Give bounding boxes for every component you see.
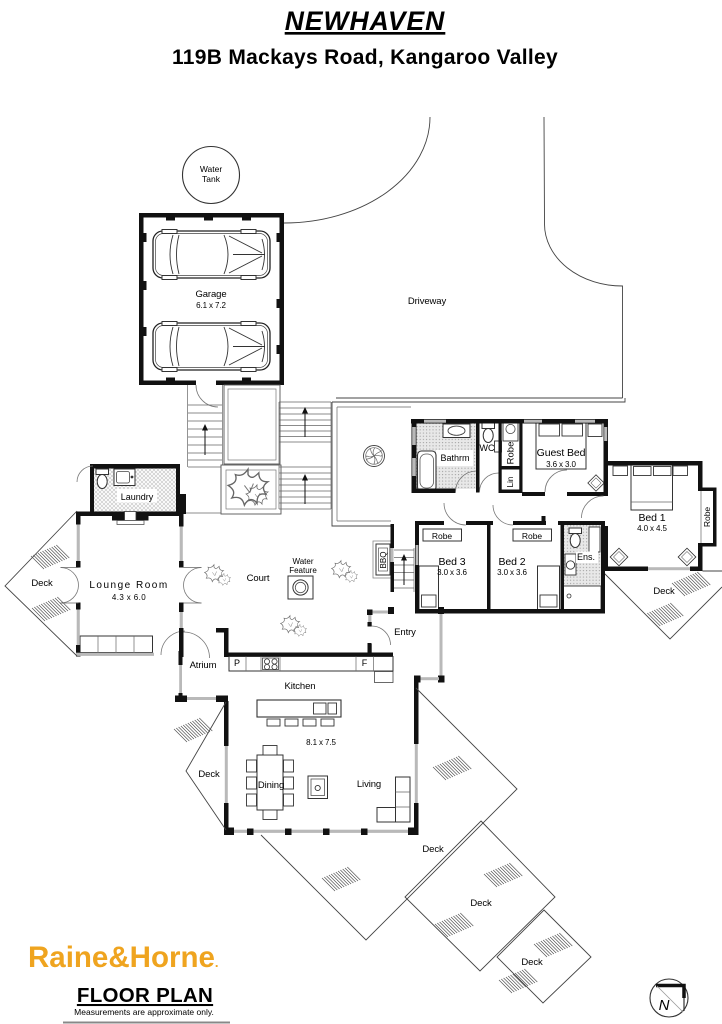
svg-text:6.1 x 7.2: 6.1 x 7.2 xyxy=(196,301,226,310)
svg-text:Guest Bed: Guest Bed xyxy=(537,447,586,459)
svg-text:Driveway: Driveway xyxy=(408,296,447,307)
svg-text:Court: Court xyxy=(247,573,270,584)
svg-text:Ens.: Ens. xyxy=(577,552,595,562)
svg-text:FLOOR PLAN: FLOOR PLAN xyxy=(77,984,213,1007)
svg-text:Water: Water xyxy=(292,557,313,566)
svg-text:Lin: Lin xyxy=(506,477,515,488)
svg-text:3.6 x 3.0: 3.6 x 3.0 xyxy=(546,460,576,469)
svg-text:Robe: Robe xyxy=(506,442,517,465)
svg-text:Tank: Tank xyxy=(202,174,221,184)
svg-text:Living: Living xyxy=(357,779,381,790)
svg-text:Bed 3: Bed 3 xyxy=(439,556,466,568)
svg-text:119B Mackays Road, Kangaroo Va: 119B Mackays Road, Kangaroo Valley xyxy=(172,46,558,69)
svg-text:Raine&Horne.: Raine&Horne. xyxy=(28,941,219,974)
svg-text:Feature: Feature xyxy=(289,566,317,575)
svg-text:NEWHAVEN: NEWHAVEN xyxy=(285,6,446,36)
svg-text:F: F xyxy=(362,658,368,668)
svg-text:4.3 x 6.0: 4.3 x 6.0 xyxy=(112,593,146,602)
svg-text:Garage: Garage xyxy=(195,289,226,300)
svg-text:Bed 2: Bed 2 xyxy=(499,556,526,568)
svg-text:Dining: Dining xyxy=(258,780,284,791)
svg-text:Lounge Room: Lounge Room xyxy=(89,580,168,591)
svg-text:3.0 x 3.6: 3.0 x 3.6 xyxy=(497,568,527,577)
svg-text:P: P xyxy=(234,658,240,668)
svg-text:BBQ: BBQ xyxy=(379,552,388,569)
svg-text:Laundry: Laundry xyxy=(121,492,154,502)
svg-text:N: N xyxy=(659,997,670,1014)
svg-text:4.0 x 4.5: 4.0 x 4.5 xyxy=(637,524,667,533)
svg-text:Bathrm: Bathrm xyxy=(440,453,469,463)
svg-text:Deck: Deck xyxy=(653,586,675,597)
svg-text:Robe: Robe xyxy=(432,531,453,541)
svg-text:Deck: Deck xyxy=(470,898,492,909)
svg-text:8.1 x 7.5: 8.1 x 7.5 xyxy=(306,738,336,747)
svg-text:Kitchen: Kitchen xyxy=(285,681,316,692)
svg-text:Atrium: Atrium xyxy=(190,660,217,671)
svg-text:Bed 1: Bed 1 xyxy=(639,512,666,524)
svg-text:Deck: Deck xyxy=(422,844,444,855)
svg-text:3.0 x 3.6: 3.0 x 3.6 xyxy=(437,568,467,577)
svg-text:Entry: Entry xyxy=(394,627,416,638)
svg-text:WC: WC xyxy=(480,443,495,453)
svg-text:Deck: Deck xyxy=(198,769,220,780)
svg-text:Robe: Robe xyxy=(702,507,712,528)
svg-text:Robe: Robe xyxy=(522,531,543,541)
svg-text:Deck: Deck xyxy=(31,578,53,589)
svg-text:Water: Water xyxy=(200,164,223,174)
svg-text:Measurements are approximate o: Measurements are approximate only. xyxy=(74,1007,214,1017)
svg-text:Deck: Deck xyxy=(521,957,543,968)
